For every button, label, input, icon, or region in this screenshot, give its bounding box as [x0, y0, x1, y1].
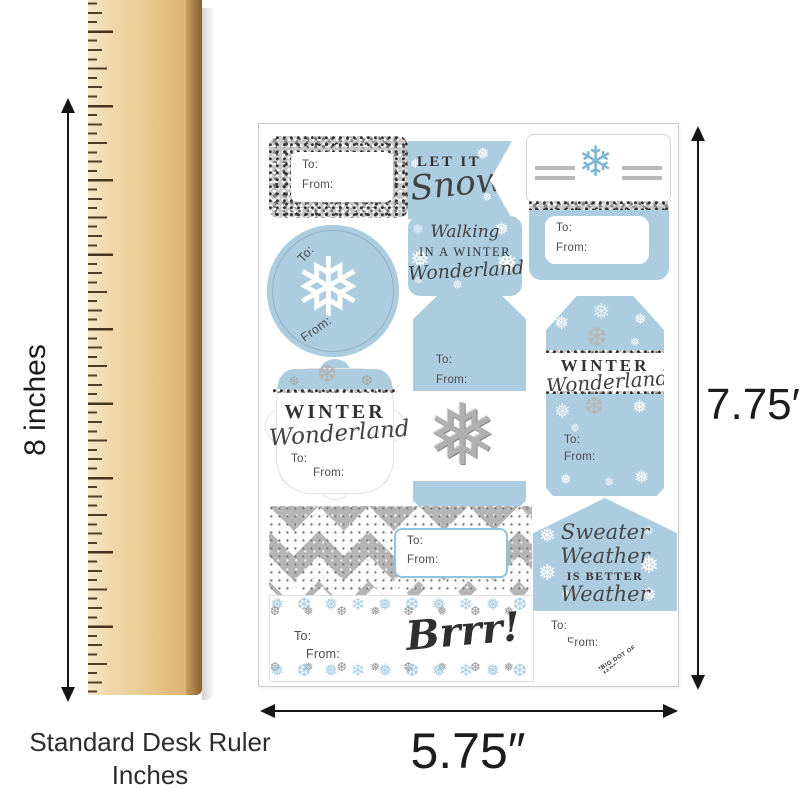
to-from-box: To: From: [394, 528, 508, 578]
tag-let-it-snow: LET IT Snow [408, 141, 512, 219]
wooden-ruler: 9 8 7 6 5 4 3 2 1 [88, 0, 186, 695]
decor-line [622, 166, 662, 170]
ruler-side-edge [186, 0, 202, 695]
tag-glitter-snowflake-luggage: To: From: ❅ [413, 296, 526, 506]
ruler-caption: Standard Desk Ruler Inches [0, 726, 300, 792]
glitter-line [273, 389, 397, 393]
from-label: From: [567, 637, 599, 649]
to-label: To: [551, 620, 567, 632]
sheet-width-label: 5.75″ [368, 722, 568, 780]
to-label: To: [302, 159, 318, 171]
tag-walking-winter-wonderland: Walking IN A WINTER Wonderland [408, 216, 522, 296]
snowflake-border [270, 658, 533, 682]
glitter-branch-icon: ❆ [584, 395, 604, 419]
weather-label: Weather [533, 544, 677, 568]
ruler-inch-ticks [88, 0, 113, 695]
snowflake-icon [634, 312, 647, 327]
tag-top: Sweater Weather IS BETTER Weather [533, 498, 677, 611]
tag-circle-snowflake: To: ❅ From: [267, 225, 399, 357]
snow-label: Snow [408, 161, 492, 209]
snowflake-icon [592, 301, 610, 323]
from-label: From: [407, 554, 439, 566]
tag-sweater-weather: Sweater Weather IS BETTER Weather To: Fr… [533, 498, 677, 674]
weather2-label: Weather [533, 582, 677, 606]
from-label: From: [302, 179, 334, 191]
to-label: To: [556, 222, 572, 234]
wonderland-label: Wonderland [408, 257, 523, 285]
ruler-shadow [202, 8, 215, 700]
from-label: From: [564, 451, 596, 463]
tag-winter-wonderland-scallop: ❆ ❆ ❆ WINTER Wonderland To: From: [269, 361, 401, 501]
ruler-caption-line2: Inches [0, 759, 300, 792]
sweater-label: Sweater [533, 520, 677, 544]
tag-chevron: To: From: [269, 506, 532, 600]
to-label: To: [291, 453, 307, 465]
from-label: From: [556, 242, 588, 254]
snowflake-icon [630, 336, 640, 348]
snowflake-icon: ❄ [578, 141, 613, 183]
decor-line [535, 166, 575, 170]
glitter-line [546, 391, 664, 394]
gift-tag-sheet: To: From: LET IT Snow ❄ To: From: [258, 123, 679, 687]
from-label: From: [436, 374, 468, 386]
decor-line [535, 176, 575, 180]
tag-bottom-band [413, 481, 526, 506]
to-label: To: [294, 629, 312, 643]
brrr-label: Brrr! [396, 602, 530, 660]
tag-glitter-rectangle: To: From: [269, 136, 408, 218]
ruler-height-label: 8 inches [19, 315, 53, 485]
walking-label: Walking [408, 222, 522, 242]
tag-blue-rectangle: To: From: [529, 210, 669, 280]
ruler-caption-line1: Standard Desk Ruler [0, 726, 300, 759]
to-label: To: [436, 354, 452, 366]
tag-top: To: From: [413, 296, 526, 391]
snowflake-icon [554, 402, 571, 422]
snowflake-icon [560, 472, 572, 486]
snowflake-icon [632, 398, 647, 416]
tag-winter-wonderland-tall: ❆ WINTER Wonderland ❆ To: From: [546, 296, 664, 496]
snowflake-icon [570, 422, 580, 434]
snowflake-icon [554, 314, 569, 332]
sheet-width-arrow [260, 703, 678, 719]
product-dimension-image: 9 8 7 6 5 4 3 2 1 8 inches Standard Desk… [0, 0, 800, 800]
decor-line [622, 176, 662, 180]
to-from-box: To: From: [545, 216, 649, 264]
glitter-branch-icon: ❆ [317, 363, 337, 387]
to-label: To: [564, 434, 580, 446]
from-label: From: [313, 467, 345, 479]
to-label: To: [407, 535, 423, 547]
brand-text: *BIG DOT OF HAPPINESS* [598, 626, 671, 678]
sheet-height-label: 7.75″ [706, 380, 800, 430]
ruler-height-arrow [60, 98, 76, 702]
to-from-box: To: From: [291, 152, 393, 202]
tag-brrr: To: From: Brrr! [269, 595, 534, 682]
glitter-snowflake-icon: ❅ [427, 393, 497, 477]
glitter-strip [529, 201, 669, 210]
snowflake-icon [634, 468, 649, 486]
snowflake-icon [604, 476, 614, 488]
sheet-height-arrow [690, 126, 706, 690]
tag-snowflake-lines: ❄ [526, 134, 671, 203]
glitter-branch-icon: ❆ [361, 373, 373, 387]
glitter-branch-icon: ❆ [289, 375, 299, 387]
glitter-branch-icon: ❆ [586, 324, 608, 350]
